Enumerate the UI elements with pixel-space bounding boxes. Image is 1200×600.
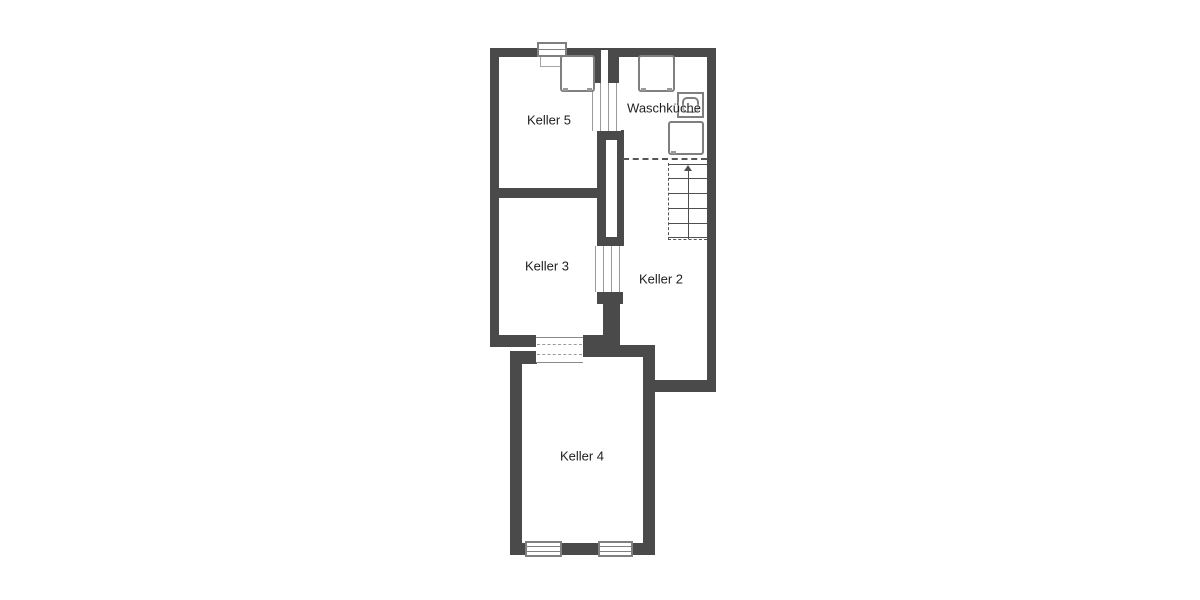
- stairs-icon: [668, 163, 707, 240]
- floor-plan: Keller 5 Waschküche Keller 3 Keller 2 Ke…: [0, 0, 1200, 600]
- stair-direction-line: [688, 167, 689, 239]
- door-icon: [594, 246, 623, 292]
- room-label-waschkueche: Waschküche: [627, 101, 701, 116]
- door-icon: [536, 337, 583, 363]
- wall-keller2-bottom: [643, 380, 716, 392]
- wall-stub-right-of-duct: [608, 56, 619, 83]
- room-label-keller-5: Keller 5: [527, 113, 571, 128]
- wall-keller3-bottom: [490, 335, 536, 347]
- wall-outer-right: [707, 48, 716, 392]
- duct-slot: [601, 50, 608, 83]
- wall-keller4-top-left: [510, 351, 537, 364]
- room-boundary-dashed-line: [623, 158, 707, 160]
- shaft-interior: [606, 140, 617, 237]
- wall-keller4-right: [643, 347, 655, 555]
- door-icon: [591, 83, 621, 131]
- window-icon: [525, 541, 562, 557]
- stair-up-arrow-icon: [684, 165, 692, 171]
- wall-keller4-left: [510, 351, 522, 555]
- room-label-keller-4: Keller 4: [560, 449, 604, 464]
- room-label-keller-2: Keller 2: [639, 272, 683, 287]
- window-icon: [598, 541, 633, 557]
- appliance-icon: [668, 121, 704, 155]
- washing-machine-icon: [560, 55, 595, 92]
- room-label-keller-3: Keller 3: [525, 259, 569, 274]
- wall-divider-keller5-keller3: [490, 188, 603, 198]
- washing-machine-icon: [638, 55, 675, 92]
